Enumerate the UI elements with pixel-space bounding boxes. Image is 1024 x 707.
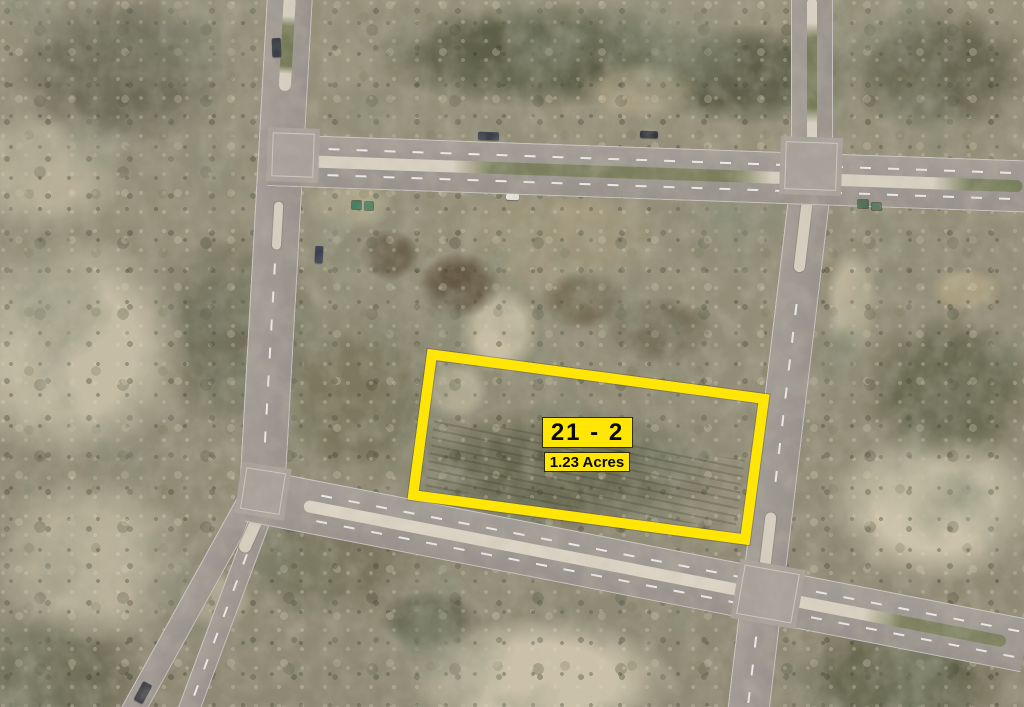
- vehicle: [478, 132, 499, 141]
- median-island: [272, 201, 284, 249]
- utility-box: [352, 201, 361, 209]
- utility-box: [365, 202, 373, 210]
- intersection-northwest: [266, 127, 320, 183]
- vehicle: [506, 194, 519, 200]
- median-strip: [279, 0, 296, 91]
- vehicle: [272, 38, 282, 57]
- lane-marking: [746, 636, 757, 707]
- intersection-southeast: [730, 559, 805, 630]
- median-strip: [807, 0, 817, 148]
- vehicle: [315, 246, 324, 263]
- lane-marking: [263, 264, 276, 454]
- intersection-northeast: [779, 136, 843, 196]
- vehicle: [640, 131, 658, 139]
- lane-marking: [773, 304, 797, 493]
- utility-box: [858, 200, 868, 208]
- parcel-area-label: 1.23 Acres: [544, 452, 630, 472]
- intersection-southwest: [234, 461, 292, 520]
- aerial-parcel-photo: 21 - 2 1.23 Acres: [0, 0, 1024, 707]
- utility-box: [872, 203, 881, 210]
- parcel-lot-label: 21 - 2: [542, 417, 633, 448]
